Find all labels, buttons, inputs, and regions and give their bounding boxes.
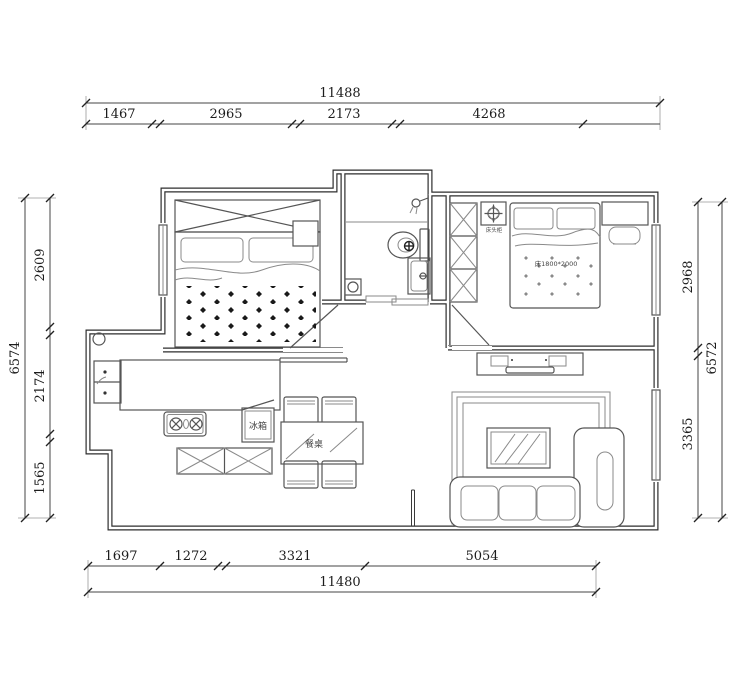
dim-bottom-overall: 11480 — [319, 575, 360, 590]
dim-bottom-seg1: 1697 — [104, 549, 137, 564]
dim-bottom-seg3: 3321 — [278, 549, 311, 564]
dining-table-label: 餐桌 — [305, 438, 323, 450]
bed-bedroom1-icon — [175, 232, 320, 347]
dim-top-seg4: 4268 — [472, 107, 505, 122]
dim-top-seg3: 2173 — [327, 107, 360, 122]
dim-left-seg3: 1565 — [33, 461, 48, 494]
nightstand-bedroom2-icon: 床头柜 — [481, 202, 506, 234]
door-bedroom2 — [448, 305, 492, 351]
coffee-table-icon — [487, 428, 550, 468]
tv-cabinet-icon — [477, 353, 583, 375]
dim-bottom-seg4: 5054 — [465, 549, 498, 564]
dim-right-seg1: 2968 — [681, 260, 696, 293]
stove-icon — [164, 412, 206, 436]
fridge-icon: 冰箱 — [242, 400, 274, 442]
dim-chain-top: 11488 1467 2965 2173 4268 — [82, 86, 664, 130]
dim-top-overall: 11488 — [319, 86, 360, 101]
bathroom — [345, 198, 430, 295]
desk-bedroom2-icon — [602, 202, 648, 244]
window-living-right — [652, 388, 661, 482]
tv-icon — [506, 367, 554, 373]
bed-size-label: 床1800*2000 — [535, 259, 578, 268]
kitchen-counter — [120, 360, 280, 410]
dim-left-seg1: 2609 — [33, 248, 48, 281]
dim-chain-right: 2968 3365 6572 — [681, 198, 728, 522]
door-bathroom-sliding — [366, 296, 428, 305]
living-room — [450, 353, 624, 527]
shower-icon — [410, 198, 428, 214]
floor-drain-icon — [345, 279, 361, 295]
kitchen-sink-icon — [94, 361, 121, 403]
dim-right-seg2: 3365 — [681, 417, 696, 450]
window-bedroom2-right — [652, 223, 661, 317]
nightstand-bedroom1-icon — [293, 221, 318, 246]
fridge-label: 冰箱 — [249, 420, 267, 432]
bed-bedroom2-icon: 床1800*2000 — [510, 203, 600, 308]
washbasin-icon — [408, 258, 430, 294]
walls — [88, 172, 656, 528]
dim-top-seg1: 1467 — [102, 107, 135, 122]
window-bedroom1-left — [159, 223, 168, 297]
entry-cabinet-icon — [177, 448, 272, 474]
kitchen: 冰箱 — [93, 333, 280, 474]
nightstand-label: 床头柜 — [486, 226, 503, 234]
dim-chain-bottom: 1697 1272 3321 5054 11480 — [84, 549, 600, 598]
floor-plan-canvas: 床头柜 床1800*2000 — [0, 0, 740, 678]
dim-left-seg2: 2174 — [33, 369, 48, 402]
floor-plan-page: 床头柜 床1800*2000 — [0, 0, 740, 678]
kitchen-drain-icon — [93, 333, 105, 345]
dim-right-overall: 6572 — [705, 341, 720, 374]
dim-top-seg2: 2965 — [209, 107, 242, 122]
dim-chain-left: 6574 2609 2174 1565 — [8, 194, 56, 522]
dining-set-icon: 餐桌 — [281, 397, 363, 488]
wardrobe-bedroom2-icon — [450, 203, 477, 302]
dim-left-overall: 6574 — [8, 341, 23, 374]
toilet-icon — [388, 229, 429, 261]
dim-bottom-seg2: 1272 — [174, 549, 207, 564]
